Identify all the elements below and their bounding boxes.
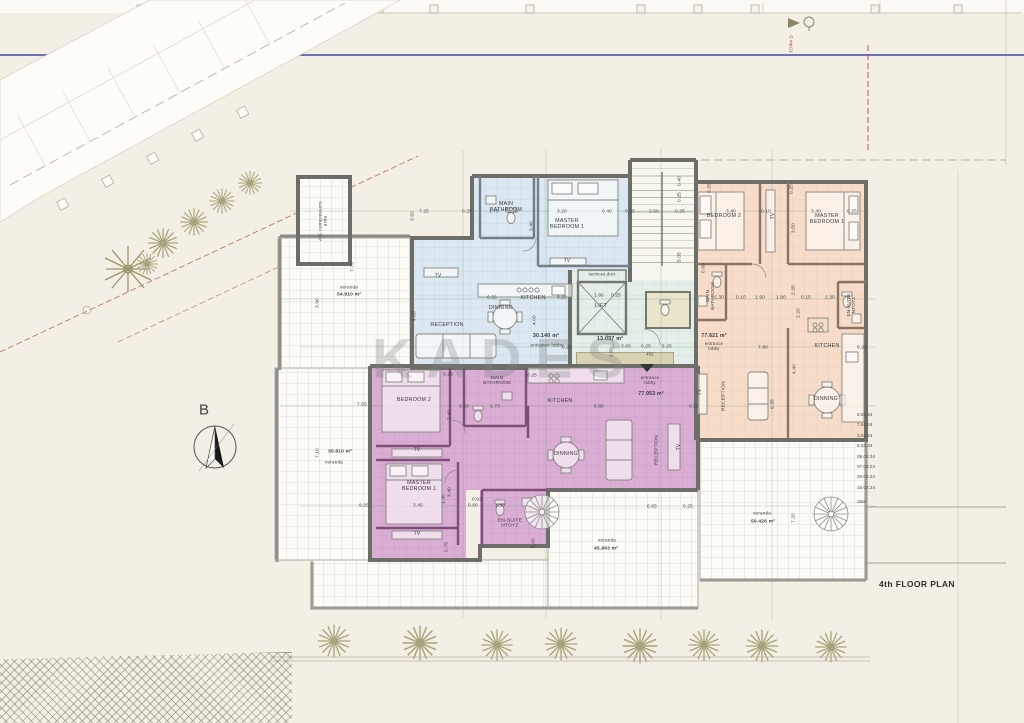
dining-table-purple [548, 437, 584, 473]
revision-date-row: 3.04.24 [857, 431, 893, 441]
toilet-purple-bath [473, 392, 512, 422]
revision-date-row: 07.03.24 [857, 462, 893, 472]
revision-footer: date [857, 497, 893, 507]
tv-unit-purple-living [668, 424, 680, 470]
kitchen-blue [478, 284, 572, 297]
revision-date-row: 7.04.24 [857, 420, 893, 430]
dining-table-orange [809, 382, 845, 418]
toilet-blue-bath [486, 196, 516, 224]
revision-dates: 8.04.247.04.243.04.248.03.2409.03.2407.0… [857, 410, 893, 508]
sofa-purple [606, 420, 632, 480]
revision-date-row: 09.03.24 [857, 452, 893, 462]
bed-orange-master [806, 192, 860, 250]
bed-blue-master [548, 180, 618, 236]
spiral-stair-bottom [525, 495, 559, 529]
tv-unit-orange-living [698, 374, 707, 414]
toilet-orange-bath [698, 272, 722, 306]
tv-unit-orange-bedrooms [766, 190, 775, 252]
spiral-stair-right [814, 497, 848, 531]
plan-title: 4th FLOOR PLAN [879, 579, 955, 589]
revision-date-row: 8.03.24 [857, 441, 893, 451]
revision-date-row: 15.02.24 [857, 483, 893, 493]
sofa-orange [748, 372, 768, 420]
revision-date-row: 8.04.24 [857, 410, 893, 420]
tv-unit-purple-1 [392, 449, 442, 457]
tv-unit-blue [424, 268, 458, 277]
watermark: KADES [372, 326, 638, 391]
bed-purple-master [386, 464, 442, 524]
revision-date-row: 29.02.24 [857, 472, 893, 482]
toilet-orange-ensuite [842, 292, 861, 323]
north-label: B [199, 402, 209, 419]
toilet-wc [660, 300, 670, 316]
floor-plan-sheet: KADES MAIN BATHROOMMASTER BEDROOM 1TVTVR… [0, 0, 1024, 723]
tv-unit-blue-bedroom [550, 258, 586, 265]
bed-orange-bedroom2 [698, 192, 744, 250]
tv-unit-purple-2 [392, 531, 442, 539]
